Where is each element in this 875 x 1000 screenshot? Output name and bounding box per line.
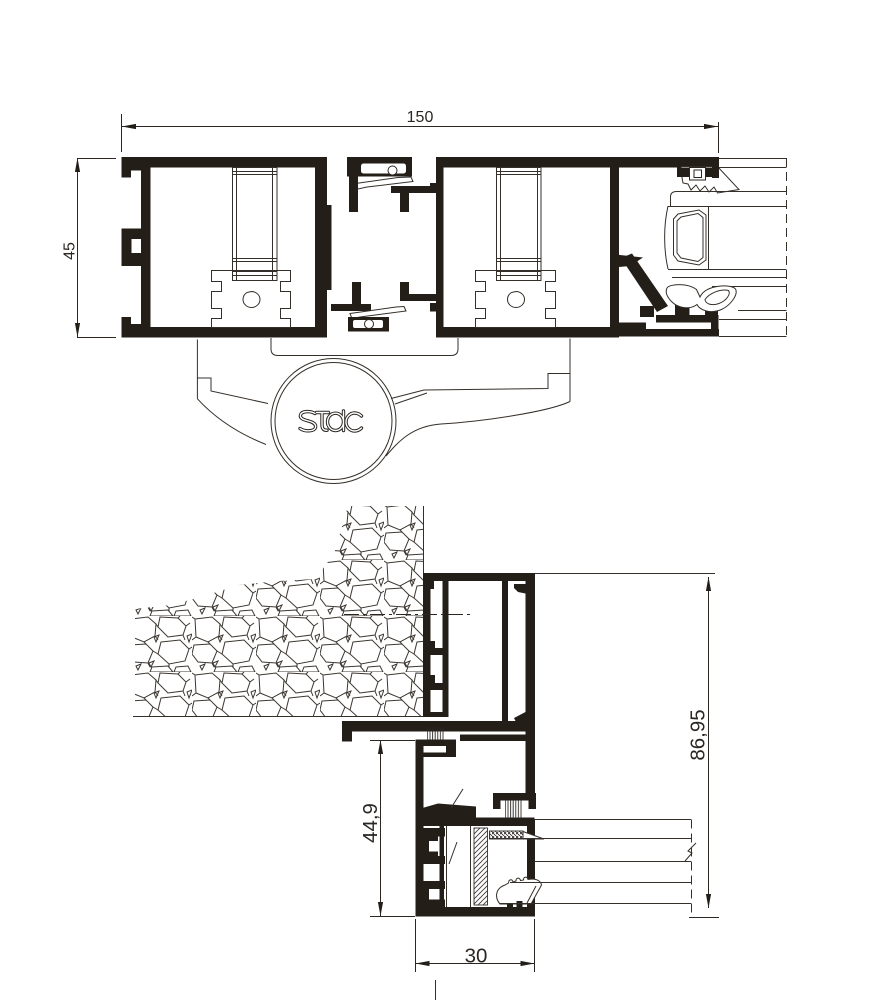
svg-text:86,95: 86,95 [687,709,710,760]
svg-text:150: 150 [407,109,434,126]
svg-text:30: 30 [465,945,488,968]
svg-text:45: 45 [62,242,79,260]
svg-text:44,9: 44,9 [359,803,382,843]
